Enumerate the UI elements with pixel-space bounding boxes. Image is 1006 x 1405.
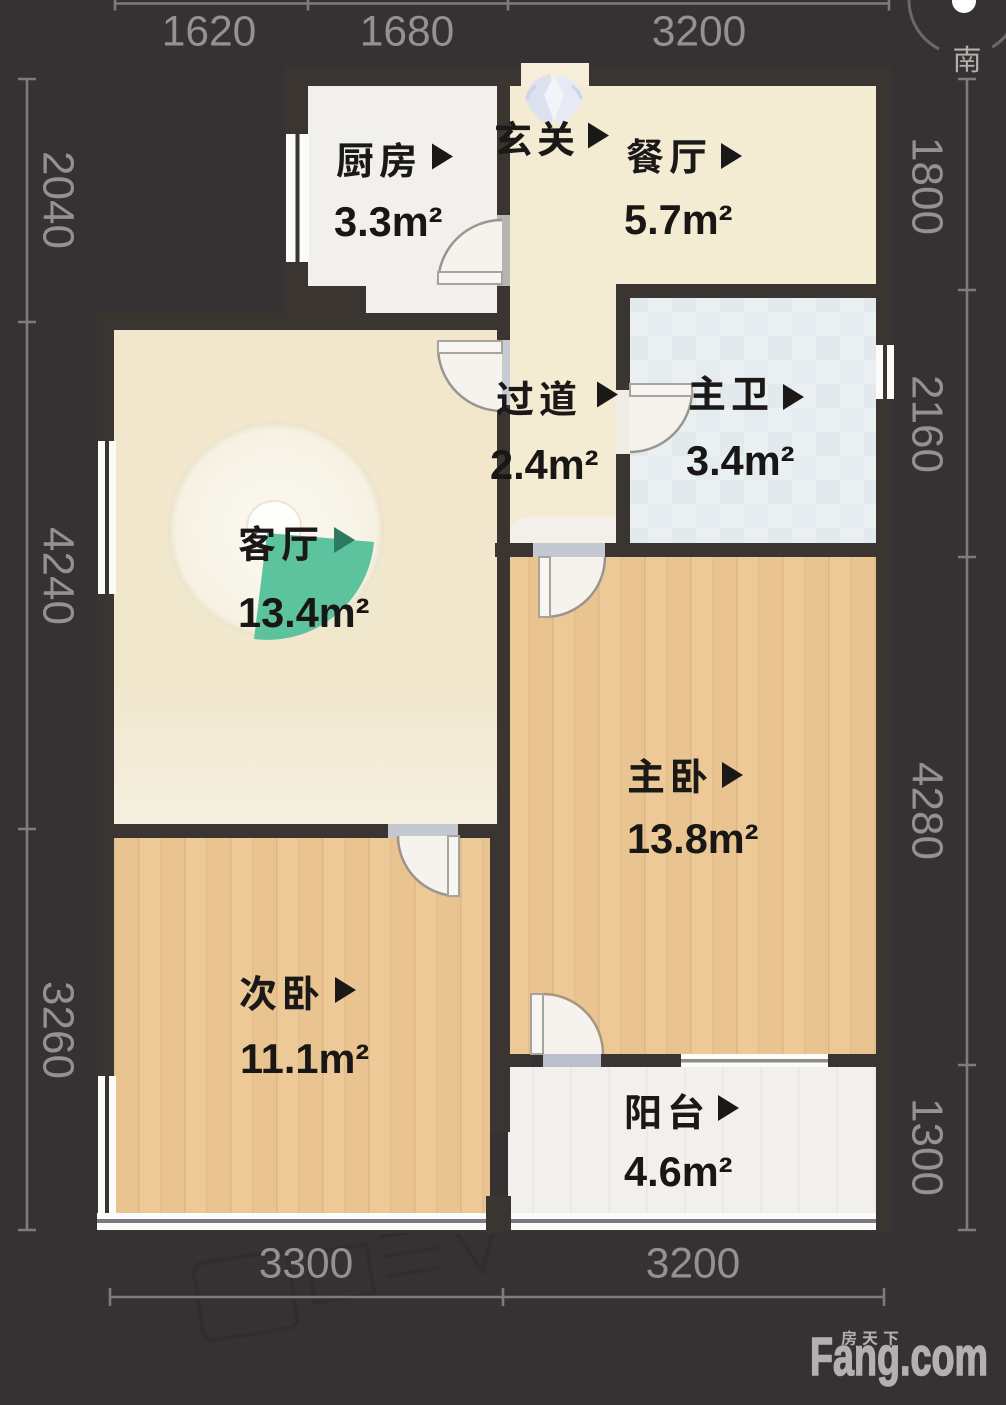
svg-text:4280: 4280 [903,762,952,860]
svg-text:3200: 3200 [652,9,747,56]
svg-text:3200: 3200 [646,1241,741,1288]
svg-text:13.8m²: 13.8m² [627,815,759,862]
svg-text:3.3m²: 3.3m² [334,198,442,245]
svg-text:1620: 1620 [162,9,257,56]
svg-text:5.7m²: 5.7m² [624,196,732,243]
svg-text:Fang.com: Fang.com [810,1327,988,1387]
svg-text:3300: 3300 [259,1241,354,1288]
svg-text:2160: 2160 [903,375,952,473]
svg-text:3260: 3260 [34,981,83,1079]
svg-text:13.4m²: 13.4m² [238,589,370,636]
svg-text:3.4m²: 3.4m² [686,437,794,484]
svg-text:4240: 4240 [34,527,83,625]
svg-text:2040: 2040 [34,151,83,249]
svg-text:11.1m²: 11.1m² [240,1035,369,1082]
svg-text:1300: 1300 [903,1098,952,1196]
svg-text:2.4m²: 2.4m² [490,441,598,488]
svg-text:1680: 1680 [360,9,455,56]
svg-text:4.6m²: 4.6m² [624,1148,732,1195]
svg-text:1800: 1800 [903,137,952,235]
